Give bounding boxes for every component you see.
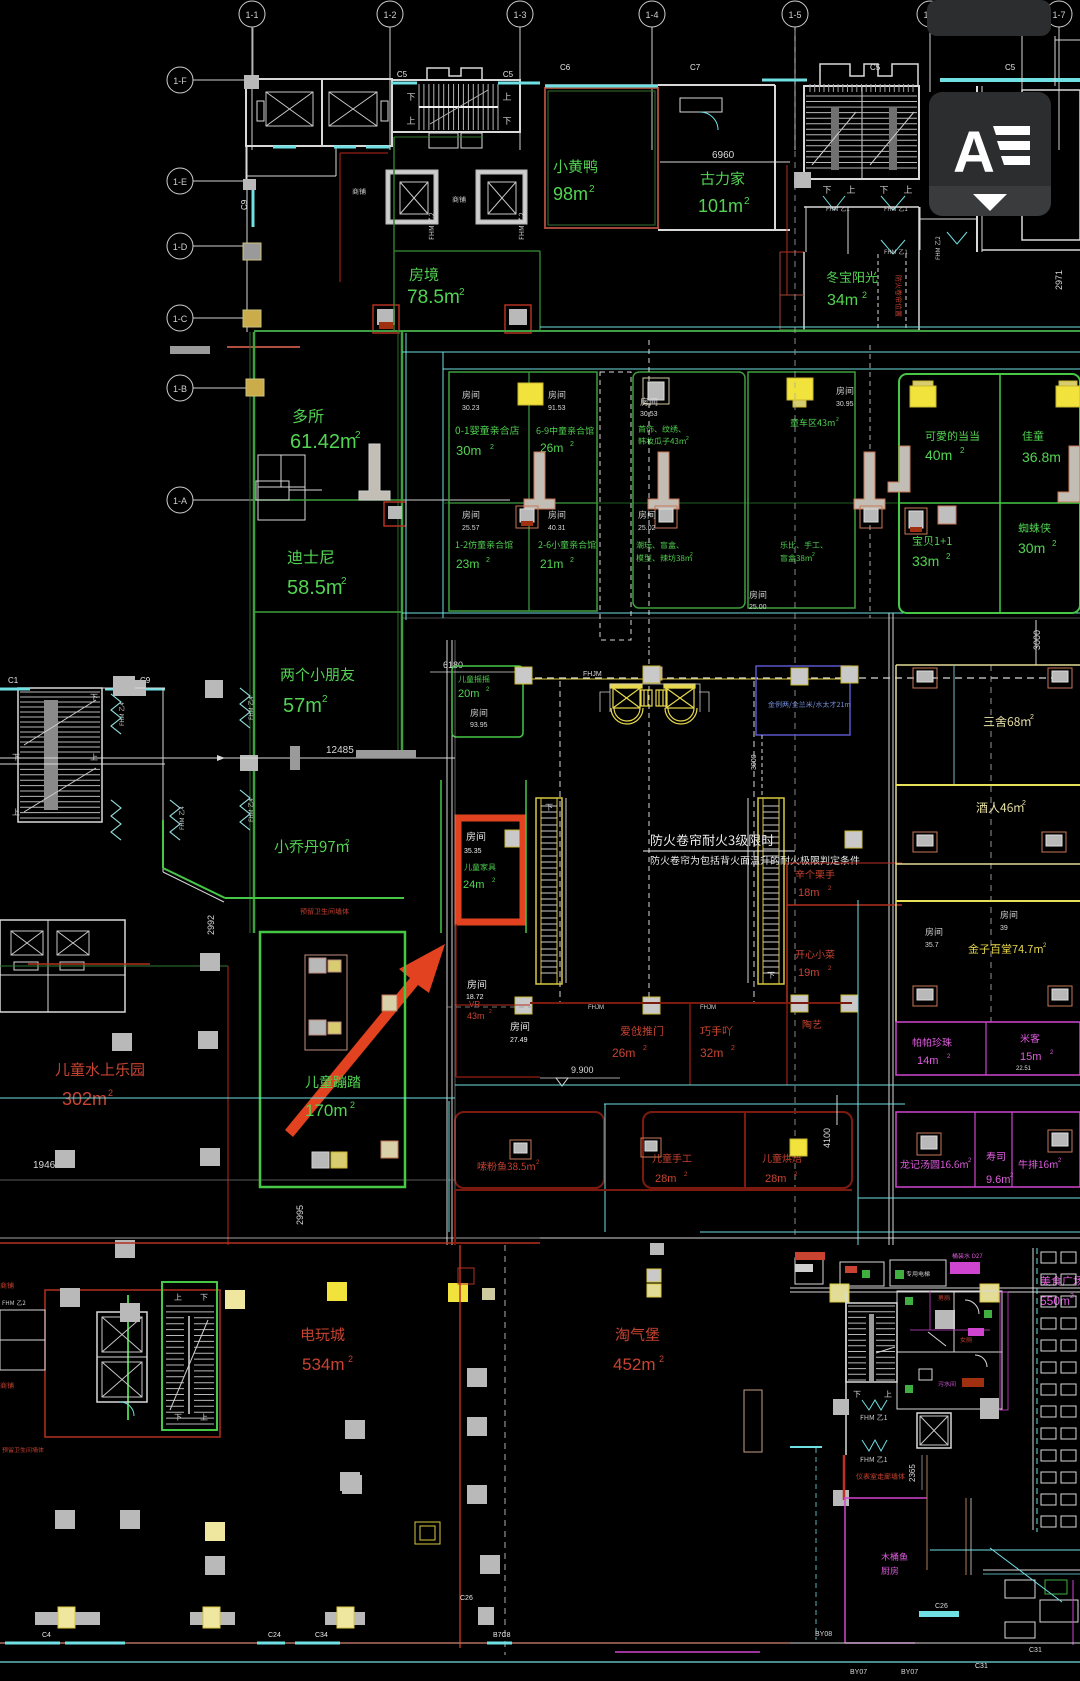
svg-text:15m: 15m (1020, 1051, 1041, 1063)
svg-text:C5: C5 (397, 70, 408, 79)
svg-text:C31: C31 (975, 1663, 988, 1670)
svg-text:2: 2 (1052, 539, 1057, 548)
svg-text:1-3: 1-3 (513, 10, 526, 20)
svg-text:2: 2 (489, 1009, 492, 1015)
svg-text:2: 2 (570, 441, 574, 448)
svg-text:61.42m: 61.42m (290, 431, 357, 453)
svg-text:BY07: BY07 (850, 1669, 867, 1676)
svg-text:40.31: 40.31 (548, 525, 566, 532)
svg-text:19m: 19m (798, 967, 819, 979)
svg-text:C1: C1 (8, 676, 19, 685)
svg-text:C6: C6 (560, 63, 571, 72)
svg-text:30m: 30m (1018, 540, 1045, 556)
svg-text:91.53: 91.53 (548, 405, 566, 412)
svg-text:C4: C4 (42, 1632, 51, 1639)
svg-text:2: 2 (836, 417, 839, 423)
svg-text:A: A (953, 120, 995, 185)
svg-text:C9: C9 (240, 199, 249, 210)
svg-text:C5: C5 (1005, 63, 1016, 72)
svg-text:25.00: 25.00 (749, 604, 767, 611)
svg-text:20m: 20m (458, 688, 479, 700)
svg-text:C24: C24 (268, 1632, 281, 1639)
svg-text:25.02: 25.02 (638, 525, 656, 532)
svg-text:2: 2 (946, 552, 951, 561)
svg-text:2: 2 (643, 1045, 647, 1052)
svg-text:2: 2 (486, 557, 490, 564)
svg-text:24m: 24m (463, 879, 484, 891)
svg-text:C26: C26 (935, 1603, 948, 1610)
svg-text:1-4: 1-4 (645, 10, 658, 20)
svg-text:1-E: 1-E (173, 177, 187, 187)
svg-text:30.53: 30.53 (640, 411, 658, 418)
svg-text:FHJM: FHJM (700, 1005, 716, 1011)
svg-text:35.35: 35.35 (464, 848, 482, 855)
svg-text:26m: 26m (612, 1046, 635, 1060)
svg-text:1-F: 1-F (173, 76, 187, 86)
svg-text:34m: 34m (827, 292, 858, 309)
svg-text:BY07: BY07 (901, 1669, 918, 1676)
svg-text:1-C: 1-C (173, 314, 188, 324)
svg-text:33m: 33m (912, 553, 939, 569)
svg-text:2: 2 (589, 184, 595, 195)
svg-text:57m: 57m (283, 695, 322, 717)
svg-text:9.900: 9.900 (571, 1065, 594, 1075)
svg-text:98m: 98m (553, 184, 588, 204)
svg-text:452m: 452m (613, 1355, 656, 1374)
svg-text:28m: 28m (655, 1173, 676, 1185)
svg-text:2: 2 (1022, 800, 1026, 807)
svg-text:2995: 2995 (295, 1205, 305, 1225)
svg-text:2: 2 (490, 444, 494, 451)
svg-text:2971: 2971 (1054, 270, 1064, 290)
svg-text:C7: C7 (690, 63, 701, 72)
svg-text:FHJM: FHJM (583, 671, 602, 678)
svg-text:2: 2 (812, 552, 815, 558)
svg-text:1-D: 1-D (173, 242, 188, 252)
svg-text:2992: 2992 (206, 915, 216, 935)
svg-text:C26: C26 (460, 1595, 473, 1602)
svg-text:18m: 18m (798, 887, 819, 899)
svg-text:39: 39 (1000, 925, 1008, 932)
svg-text:22.51: 22.51 (1016, 1066, 1032, 1072)
svg-text:2: 2 (690, 552, 693, 558)
svg-text:2: 2 (960, 446, 965, 455)
svg-text:78.5m: 78.5m (407, 287, 460, 308)
svg-text:C5: C5 (503, 70, 514, 79)
svg-text:2: 2 (731, 1045, 735, 1052)
svg-text:30m: 30m (456, 443, 481, 458)
svg-text:30.23: 30.23 (462, 405, 480, 412)
svg-text:43m: 43m (467, 1011, 485, 1021)
svg-text:25.57: 25.57 (462, 525, 480, 532)
svg-text:21m: 21m (540, 557, 563, 571)
svg-text:1-B: 1-B (173, 384, 187, 394)
svg-text:1-1: 1-1 (245, 10, 258, 20)
svg-text:2: 2 (686, 436, 689, 442)
svg-text:27.49: 27.49 (510, 1037, 528, 1044)
svg-text:2: 2 (355, 430, 361, 441)
svg-text:534m: 534m (302, 1355, 345, 1374)
svg-text:BY08: BY08 (815, 1631, 832, 1638)
svg-text:2: 2 (1030, 714, 1034, 721)
svg-text:4100: 4100 (822, 1128, 832, 1148)
svg-text:170m: 170m (305, 1101, 348, 1120)
svg-text:12485: 12485 (326, 745, 354, 756)
svg-text:6180: 6180 (443, 660, 463, 670)
svg-text:2: 2 (659, 1354, 664, 1364)
svg-text:1-A: 1-A (173, 496, 187, 506)
svg-text:30.95: 30.95 (836, 401, 854, 408)
svg-text:9.6m: 9.6m (986, 1174, 1010, 1186)
svg-text:2365: 2365 (908, 1464, 917, 1482)
svg-text:B7C8: B7C8 (493, 1632, 511, 1639)
svg-text:28m: 28m (765, 1173, 786, 1185)
svg-text:36.8m: 36.8m (1022, 449, 1061, 465)
svg-text:2: 2 (322, 694, 328, 705)
svg-text:1-2: 1-2 (383, 10, 396, 20)
svg-text:58.5m: 58.5m (287, 577, 343, 599)
svg-text:C34: C34 (315, 1632, 328, 1639)
svg-text:32m: 32m (700, 1046, 723, 1060)
svg-text:FHJM: FHJM (588, 1005, 604, 1011)
svg-text:23m: 23m (456, 557, 479, 571)
svg-text:2: 2 (341, 576, 347, 587)
svg-text:93.95: 93.95 (470, 722, 488, 729)
svg-text:C31: C31 (1029, 1647, 1042, 1654)
svg-text:1-5: 1-5 (788, 10, 801, 20)
svg-text:35.7: 35.7 (925, 942, 939, 949)
svg-text:2: 2 (345, 838, 350, 847)
svg-text:2: 2 (350, 1100, 355, 1110)
svg-text:40m: 40m (925, 447, 952, 463)
svg-text:3000: 3000 (751, 754, 758, 770)
svg-text:3000: 3000 (1032, 630, 1042, 650)
svg-text:2: 2 (744, 196, 750, 207)
svg-text:6960: 6960 (712, 150, 735, 161)
svg-text:1-7: 1-7 (1052, 10, 1065, 20)
svg-text:101m: 101m (698, 196, 743, 216)
svg-text:2: 2 (348, 1354, 353, 1364)
svg-text:2: 2 (108, 1088, 113, 1098)
svg-text:14m: 14m (917, 1055, 938, 1067)
svg-text:2: 2 (862, 290, 867, 300)
svg-text:2: 2 (459, 287, 465, 298)
svg-text:2: 2 (570, 557, 574, 564)
svg-text:302m: 302m (62, 1089, 107, 1109)
